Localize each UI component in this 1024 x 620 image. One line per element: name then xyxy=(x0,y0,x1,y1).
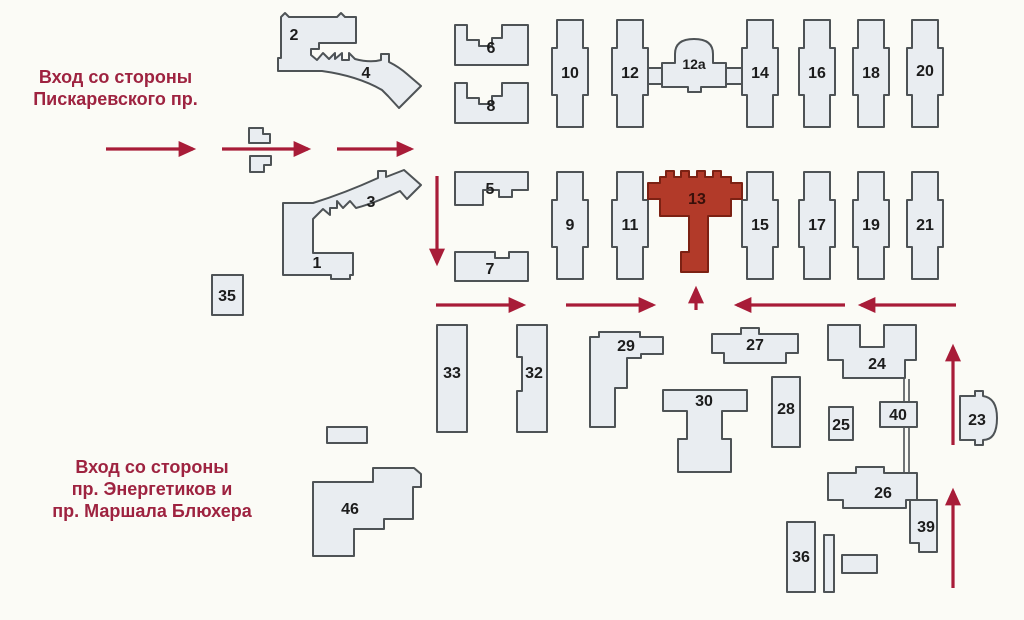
building-9-label: 9 xyxy=(566,217,575,234)
building-40: 40 xyxy=(880,402,917,427)
building-14: 14 xyxy=(742,20,778,127)
building-2-4: 2 4 xyxy=(278,13,421,108)
building-6: 6 xyxy=(455,25,528,65)
building-18-label: 18 xyxy=(862,65,880,82)
building-24: 24 xyxy=(828,325,916,378)
building-26: 26 xyxy=(828,467,917,508)
building-17: 17 xyxy=(799,172,835,279)
building-4-label: 4 xyxy=(362,65,371,82)
building-7: 7 xyxy=(455,252,528,281)
building-21: 21 xyxy=(907,172,943,279)
building-35: 35 xyxy=(212,275,243,315)
building-23-label: 23 xyxy=(968,412,986,429)
building-26-label: 26 xyxy=(874,485,892,502)
building-10: 10 xyxy=(552,20,588,127)
building-36: 36 xyxy=(787,522,815,592)
building-33-label: 33 xyxy=(443,365,461,382)
building-33: 33 xyxy=(437,325,467,432)
building-35-label: 35 xyxy=(218,288,236,305)
building-28: 28 xyxy=(772,377,800,447)
building-46: 46 xyxy=(313,468,421,556)
building-17-label: 17 xyxy=(808,217,826,234)
building-13-label: 13 xyxy=(688,191,706,208)
building-5: 5 xyxy=(455,172,528,205)
building-3-1: 3 1 xyxy=(283,170,421,279)
building-15: 15 xyxy=(742,172,778,279)
building-40-label: 40 xyxy=(889,407,907,424)
building-28-label: 28 xyxy=(777,401,795,418)
building-21-label: 21 xyxy=(916,217,934,234)
building-24-label: 24 xyxy=(868,356,886,373)
building-13-shape xyxy=(648,171,742,272)
building-29: 29 xyxy=(590,332,663,427)
building-12: 12 xyxy=(612,20,648,127)
building-14-label: 14 xyxy=(751,65,769,82)
building-18: 18 xyxy=(853,20,889,127)
building-3-label: 3 xyxy=(367,194,376,211)
building-25: 25 xyxy=(829,407,853,440)
building-30-label: 30 xyxy=(695,393,713,410)
building-20: 20 xyxy=(907,20,943,127)
building-27-label: 27 xyxy=(746,337,764,354)
building-32: 32 xyxy=(517,325,547,432)
building-16: 16 xyxy=(799,20,835,127)
small-structure-2 xyxy=(250,156,271,172)
building-32-label: 32 xyxy=(525,365,543,382)
building-16-label: 16 xyxy=(808,65,826,82)
building-12a: 12а xyxy=(662,39,726,92)
building-9: 9 xyxy=(552,172,588,279)
building-10-label: 10 xyxy=(561,65,579,82)
building-11: 11 xyxy=(612,172,648,279)
small-structure-4 xyxy=(824,535,834,592)
building-2-4-shape xyxy=(278,13,421,108)
building-39-label: 39 xyxy=(917,519,935,536)
building-12-label: 12 xyxy=(621,65,639,82)
building-46-shape xyxy=(313,468,421,556)
building-36-label: 36 xyxy=(792,549,810,566)
building-3-1-shape xyxy=(283,170,421,279)
building-15-label: 15 xyxy=(751,217,769,234)
building-2-label: 2 xyxy=(290,27,299,44)
building-29-label: 29 xyxy=(617,338,635,355)
building-20-label: 20 xyxy=(916,63,934,80)
building-8: 8 xyxy=(455,83,528,123)
building-7-label: 7 xyxy=(486,261,495,278)
map-canvas: 2 4 3 1 35 6 8 5 xyxy=(0,0,1024,620)
small-structure-3 xyxy=(327,427,367,443)
building-23: 23 xyxy=(960,391,997,445)
building-39: 39 xyxy=(910,500,937,552)
building-19: 19 xyxy=(853,172,889,279)
small-structure-5 xyxy=(842,555,877,573)
building-25-label: 25 xyxy=(832,417,850,434)
small-structure-1 xyxy=(249,128,270,143)
building-11-label: 11 xyxy=(622,217,639,234)
building-1-label: 1 xyxy=(313,255,322,272)
building-46-label: 46 xyxy=(341,501,359,518)
building-6-label: 6 xyxy=(487,40,496,57)
building-8-label: 8 xyxy=(487,98,496,115)
campus-map: Вход со стороны Пискаревского пр. Вход с… xyxy=(0,0,1024,620)
building-13-highlighted: 13 xyxy=(648,171,742,272)
building-26-shape xyxy=(828,467,917,508)
building-30: 30 xyxy=(663,390,747,472)
building-27: 27 xyxy=(712,328,798,363)
building-19-label: 19 xyxy=(862,217,880,234)
building-5-label: 5 xyxy=(486,181,495,198)
building-12a-label: 12а xyxy=(682,56,706,72)
